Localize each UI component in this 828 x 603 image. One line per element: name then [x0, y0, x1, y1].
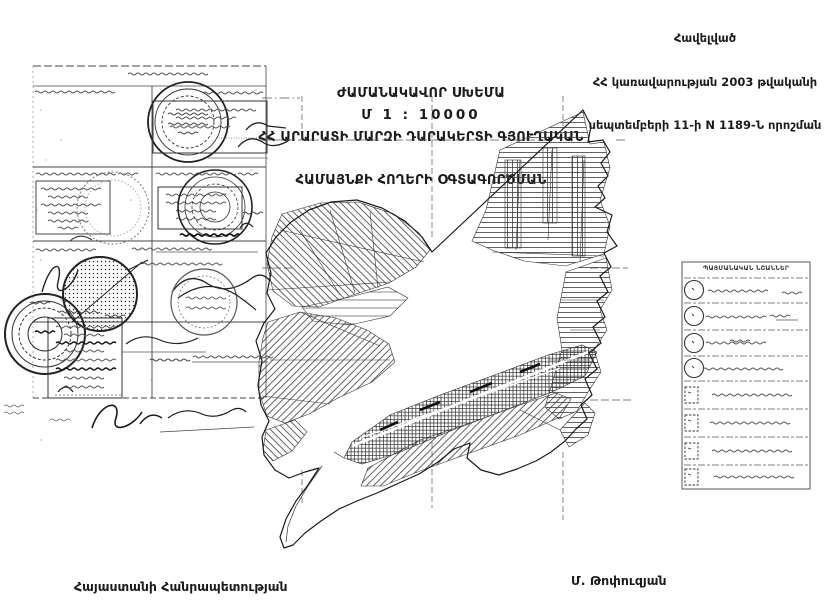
scanned-document-page: Հավելված ՀՀ կառավարության 2003 թվականի ս…: [0, 0, 828, 603]
stamp-row2-right: [158, 170, 263, 244]
parcel-sw-small: [263, 420, 307, 461]
parcel-west-mid: [259, 312, 395, 423]
parcel-west-upper: [267, 202, 430, 307]
map-figure: [256, 96, 632, 548]
legend-symbol-square-2: [685, 415, 698, 431]
map-tail-lines: [286, 452, 344, 542]
map-parcels: [259, 112, 612, 486]
stamp-row3-right: [171, 269, 270, 335]
legend-symbol-square-4: [685, 469, 698, 485]
approvals-table: [4, 66, 288, 440]
table-caption-squiggles: [35, 73, 273, 362]
document-scan-graphics: [0, 0, 828, 603]
legend-symbols: [685, 281, 704, 486]
bottom-signature: [4, 405, 254, 432]
stamp-top: [148, 82, 228, 162]
legend-row-squiggles: [703, 290, 802, 478]
legend-symbol-square-1: [685, 387, 698, 403]
legend-symbol-square-3: [685, 443, 698, 459]
legend-box: [682, 262, 810, 489]
stamp-row2-left: [36, 172, 149, 244]
